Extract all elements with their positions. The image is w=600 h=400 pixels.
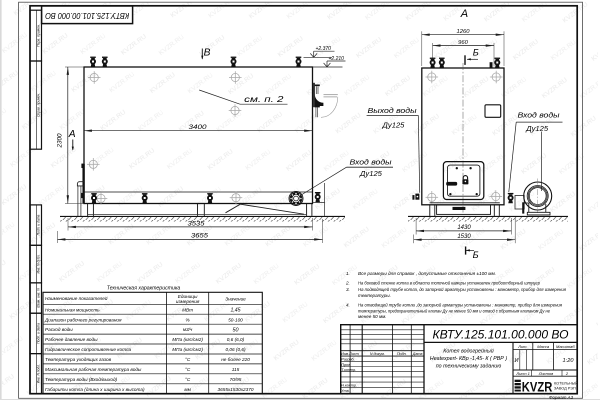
svg-text:КВТУ.125.101.00.000 ВО: КВТУ.125.101.00.000 ВО [433, 328, 569, 342]
svg-text:Габариты котла (длина х ширина: Габариты котла (длина х ширина х высота) [45, 387, 145, 392]
svg-text:Лит.: Лит. [517, 344, 527, 349]
svg-text:Формат А3: Формат А3 [549, 395, 574, 400]
svg-text:Рабочее давление воды: Рабочее давление воды [45, 337, 98, 342]
svg-text:Значение: Значение [225, 296, 246, 301]
svg-text:температуры, предохранительный: температуры, предохранительный клапан Ду… [358, 307, 550, 313]
svg-text:Б: Б [473, 47, 479, 57]
svg-text:Диапазон рабочего регулировани: Диапазон рабочего регулирования [44, 317, 122, 322]
svg-text:Справ. примеч.: Справ. примеч. [37, 93, 41, 117]
svg-text:Ду125: Ду125 [525, 124, 549, 133]
svg-text:Подп. и дата: Подп. и дата [37, 215, 41, 236]
svg-text:На подводящей трубе котла, до: На подводящей трубе котла, до запорной а… [358, 286, 567, 292]
svg-text:Техническая характеристика: Техническая характеристика [107, 286, 181, 292]
svg-text:Номинальная мощность: Номинальная мощность [45, 307, 100, 312]
svg-text:не более 220: не более 220 [221, 357, 250, 362]
svg-text:Масштаб: Масштаб [556, 344, 575, 349]
svg-text:температуры.: температуры. [358, 293, 391, 298]
svg-text:МПа (кгс/см2): МПа (кгс/см2) [172, 347, 203, 352]
svg-text:Выход воды: Выход воды [368, 106, 418, 115]
svg-text:Расход воды: Расход воды [45, 327, 73, 332]
svg-text:мм: мм [184, 387, 191, 392]
svg-text:Лист: Лист [515, 371, 527, 376]
svg-text:%: % [186, 317, 190, 322]
svg-text:1:20: 1:20 [563, 358, 575, 364]
svg-text:Максимальная рабочая температу: Максимальная рабочая температура воды [45, 367, 142, 372]
svg-text:Ду125: Ду125 [359, 169, 383, 178]
svg-text:по техническому заданию: по техническому заданию [436, 364, 501, 370]
svg-text:Дата: Дата [412, 352, 423, 356]
svg-text:+2.210: +2.210 [329, 56, 345, 62]
svg-text:Гидравлическое сопротивление к: Гидравлическое сопротивление котла [45, 347, 132, 352]
svg-text:Heatexpert- КВр -1,45- К ( РВР: Heatexpert- КВр -1,45- К ( РВР ) [430, 356, 507, 362]
svg-text:Ду125: Ду125 [382, 121, 406, 130]
svg-text:Температура воды (Вход/выход): Температура воды (Вход/выход) [45, 377, 118, 382]
svg-text:960: 960 [458, 40, 468, 46]
svg-text:50-100: 50-100 [228, 317, 243, 322]
svg-text:А: А [460, 8, 468, 20]
svg-text:ЗАВОД РЭП: ЗАВОД РЭП [554, 387, 576, 391]
svg-text:N докум.: N докум. [370, 352, 385, 356]
svg-text:Разраб.: Разраб. [341, 358, 354, 362]
svg-text:И: И [514, 358, 518, 364]
svg-text:см. п. 2: см. п. 2 [244, 94, 284, 104]
svg-text:В: В [204, 47, 211, 58]
svg-text:0,6 (6,0): 0,6 (6,0) [227, 337, 245, 342]
svg-text:2.: 2. [345, 280, 350, 285]
svg-text:Вход воды: Вход воды [350, 158, 393, 167]
svg-text:Подп. и дата: Подп. и дата [37, 323, 41, 344]
svg-text:Подп.: Подп. [397, 352, 407, 356]
svg-text:3655х1530х2370: 3655х1530х2370 [218, 387, 254, 392]
svg-text:1.: 1. [346, 271, 350, 276]
svg-text:Листов: Листов [538, 371, 554, 376]
svg-text:3400: 3400 [189, 124, 207, 131]
svg-text:2300: 2300 [57, 133, 64, 149]
svg-text:Утв.: Утв. [341, 389, 349, 393]
svg-text:1,45: 1,45 [230, 307, 240, 313]
svg-text:Температура уходящих газов: Температура уходящих газов [45, 357, 112, 362]
svg-text:Масса: Масса [537, 344, 550, 349]
svg-text:Н.контр.: Н.контр. [341, 384, 357, 388]
svg-text:1530: 1530 [457, 234, 471, 240]
svg-text:°С: °С [185, 377, 191, 382]
svg-text:МВт: МВт [182, 307, 193, 312]
svg-text:0,06 (0,6): 0,06 (0,6) [225, 347, 246, 352]
svg-text:Инв. N дубл.: Инв. N дубл. [37, 254, 41, 273]
svg-text:50: 50 [233, 328, 239, 334]
svg-text:Т.контр.: Т.контр. [341, 368, 356, 372]
svg-text:Изм.Лист: Изм.Лист [341, 352, 358, 356]
svg-text:менее 50 мм.: менее 50 мм. [358, 314, 387, 319]
svg-text:1: 1 [528, 371, 530, 376]
svg-text:1260: 1260 [457, 29, 471, 35]
svg-text:Перв. примен.: Перв. примен. [37, 24, 41, 47]
svg-text:°С: °С [185, 357, 191, 362]
svg-text:+2.370: +2.370 [316, 46, 332, 52]
svg-text:3655: 3655 [191, 234, 209, 240]
svg-text:Вход воды: Вход воды [518, 110, 561, 119]
svg-text:°С: °С [185, 367, 191, 372]
svg-text:Б: Б [473, 250, 479, 260]
svg-text:115: 115 [232, 367, 240, 372]
svg-text:1430: 1430 [457, 225, 471, 231]
svg-text:МПа (кгс/см2): МПа (кгс/см2) [172, 337, 203, 342]
svg-text:KVZR: KVZR [522, 378, 553, 394]
svg-text:измерения: измерения [176, 299, 200, 304]
svg-text:4.: 4. [346, 302, 350, 307]
svg-text:КОТЕЛЬНЫЙ: КОТЕЛЬНЫЙ [554, 381, 578, 385]
svg-text:Все размеры для справок , допу: Все размеры для справок , допустимые отк… [358, 271, 496, 276]
svg-text:3.: 3. [346, 287, 350, 292]
svg-text:Наименование показателей: Наименование показателей [45, 295, 108, 301]
svg-text:м3/ч: м3/ч [183, 327, 193, 332]
svg-text:На боковой стенке котла в обла: На боковой стенке котла в области топочн… [358, 279, 540, 285]
svg-text:На отводящей трубе котла ,до з: На отводящей трубе котла ,до запорной ар… [358, 301, 562, 307]
svg-text:3535: 3535 [188, 221, 206, 227]
svg-text:Котел водогрейный: Котел водогрейный [443, 348, 493, 355]
svg-text:А: А [68, 129, 76, 140]
svg-text:Взам. инв. N: Взам. инв. N [37, 288, 41, 308]
svg-text:Пров.: Пров. [341, 363, 351, 367]
svg-text:70/95: 70/95 [230, 377, 242, 382]
svg-text:Инв. N подл.: Инв. N подл. [37, 364, 41, 383]
svg-text:КВТУ.125.101.00.000 ВО: КВТУ.125.101.00.000 ВО [45, 11, 129, 21]
